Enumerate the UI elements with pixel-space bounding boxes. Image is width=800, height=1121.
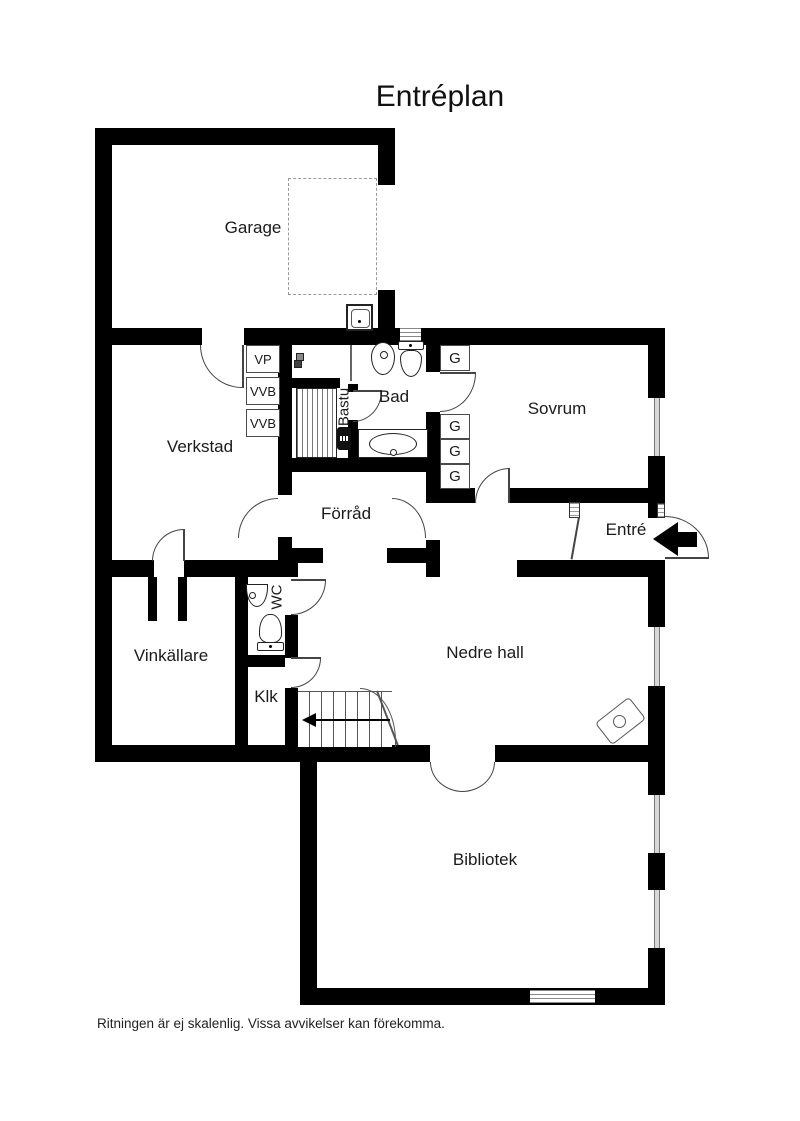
wall-segment <box>292 378 340 388</box>
stairs-direction-line <box>316 719 390 721</box>
room-label-entre: Entré <box>606 520 647 540</box>
wall-segment <box>148 577 157 621</box>
garage-door-outline <box>288 178 377 295</box>
wall-segment <box>95 745 317 762</box>
wall-segment <box>285 615 298 658</box>
wardrobe-box: G <box>440 414 470 439</box>
wc-sink-icon <box>246 584 268 607</box>
window-icon <box>648 793 665 855</box>
wall-segment <box>648 560 665 627</box>
wardrobe-box: G <box>440 464 470 489</box>
stairs-direction-arrow-icon <box>302 713 316 727</box>
wall-segment <box>648 328 665 398</box>
room-label-vinkallare: Vinkällare <box>134 646 208 666</box>
wall-segment <box>387 548 440 563</box>
wall-segment <box>95 128 112 762</box>
room-label-bad: Bad <box>379 387 409 407</box>
room-label-nedre-hall: Nedre hall <box>446 643 524 663</box>
wall-segment <box>426 328 440 372</box>
door-arc-icon <box>291 658 321 688</box>
glass-partition <box>350 345 352 381</box>
disclaimer-text: Ritningen är ej skalenlig. Vissa avvikel… <box>97 1016 445 1031</box>
wall-segment <box>112 328 202 345</box>
room-label-sovrum: Sovrum <box>528 399 587 419</box>
window-icon <box>648 396 665 458</box>
wall-segment <box>235 577 248 762</box>
wall-segment <box>112 560 154 577</box>
wall-segment <box>178 577 187 621</box>
wall-segment <box>300 988 530 1005</box>
wall-segment <box>423 328 665 345</box>
door-leaf <box>571 517 580 560</box>
wardrobe-label: G <box>449 350 461 367</box>
wall-segment <box>648 950 665 1005</box>
floor-plan: Entréplan Ritningen är ej skalenlig. Vis… <box>0 0 800 1121</box>
wood-stove-icon <box>596 696 644 744</box>
entrance-arrow-shaft <box>677 532 697 547</box>
room-label-bibliotek: Bibliotek <box>453 850 517 870</box>
wardrobe-box: G <box>440 345 470 371</box>
bidet-icon <box>371 342 395 375</box>
wall-segment <box>292 458 440 472</box>
wall-segment <box>426 412 440 462</box>
wall-segment <box>495 745 665 762</box>
room-label-forrad: Förråd <box>321 504 371 524</box>
wall-segment <box>283 548 323 563</box>
wall-segment <box>285 688 298 745</box>
heat-pump-box: VP <box>246 345 280 373</box>
room-label-bastu: Bastu <box>336 388 353 426</box>
sauna-bench-icon <box>296 388 337 458</box>
room-label-garage: Garage <box>225 218 282 238</box>
room-label-verkstad: Verkstad <box>167 437 233 457</box>
wall-segment <box>248 655 285 667</box>
door-arc-icon <box>353 391 382 422</box>
water-heater-box: VVB <box>246 377 280 405</box>
heat-pump-label: VP <box>254 352 271 367</box>
door-leaf <box>242 345 244 388</box>
wall-segment <box>517 560 665 577</box>
bathtub-icon <box>358 429 428 458</box>
door-arc-icon <box>475 468 510 503</box>
wall-segment <box>300 745 317 1005</box>
garage-sink-icon <box>346 304 373 331</box>
wall-segment <box>317 745 430 762</box>
window-icon <box>530 988 595 1005</box>
door-arc-icon <box>200 345 242 388</box>
wall-segment <box>648 855 665 892</box>
wall-segment <box>510 488 665 503</box>
wall-segment <box>244 328 398 345</box>
toilet-icon <box>398 341 424 377</box>
door-arc-icon <box>462 762 495 792</box>
entrance-arrow-icon <box>653 522 678 556</box>
wardrobe-box: G <box>440 439 470 464</box>
sauna-heater-icon <box>337 427 351 450</box>
water-heater-box: VVB <box>246 409 280 437</box>
door-arc-icon <box>291 580 326 615</box>
floor-drain-icon <box>294 353 304 368</box>
wardrobe-label: G <box>449 418 461 435</box>
door-arc-icon <box>238 498 278 538</box>
door-arc-icon <box>430 762 463 792</box>
door-arc-icon <box>440 373 476 412</box>
window-icon <box>648 888 665 950</box>
page-title: Entréplan <box>280 80 600 114</box>
water-heater-label: VVB <box>250 416 276 431</box>
window-icon <box>648 625 665 688</box>
wardrobe-label: G <box>449 468 461 485</box>
water-heater-label: VVB <box>250 384 276 399</box>
wall-segment <box>378 128 395 185</box>
wall-segment <box>278 345 292 495</box>
wall-segment <box>648 688 665 795</box>
door-arc-icon <box>152 529 184 561</box>
wall-segment <box>426 488 475 503</box>
wall-segment <box>184 560 298 577</box>
room-label-klk: Klk <box>254 687 278 707</box>
door-threshold <box>569 502 580 518</box>
wall-segment <box>95 128 395 145</box>
door-arc-icon <box>392 498 426 538</box>
room-label-wc: WC <box>269 585 286 610</box>
wc-toilet-icon <box>257 614 284 652</box>
wardrobe-label: G <box>449 443 461 460</box>
door-threshold <box>657 503 665 518</box>
